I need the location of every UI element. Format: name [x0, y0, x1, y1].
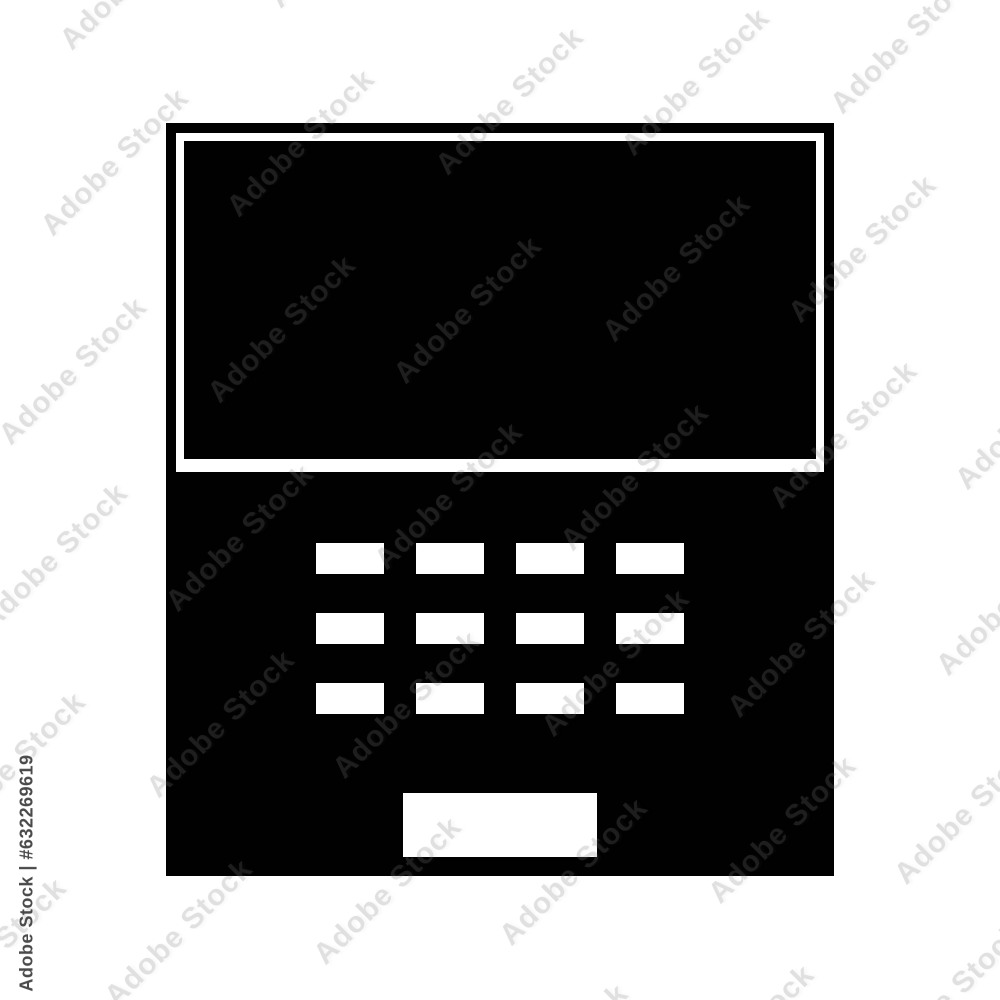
- watermark-tile-text: Adobe Stock: [0, 290, 154, 451]
- laptop-key: [516, 543, 584, 574]
- laptop-key: [416, 613, 484, 644]
- laptop-key: [616, 543, 684, 574]
- watermark-tile-text: Adobe Stock: [262, 0, 423, 15]
- watermark-attribution-text: Adobe Stock | #632269619: [17, 754, 38, 991]
- laptop-key: [316, 683, 384, 714]
- watermark-tile-text: Adobe Stock: [930, 521, 1000, 682]
- laptop-spacebar-key: [403, 793, 597, 857]
- watermark-tile-text: Adobe Stock: [888, 730, 1000, 891]
- laptop-key: [616, 683, 684, 714]
- laptop-icon: [166, 123, 834, 876]
- watermark-tile-text: Adobe Stock: [869, 916, 1000, 1000]
- laptop-key: [416, 683, 484, 714]
- watermark-tile-text: Adobe Stock: [991, 126, 1000, 287]
- laptop-screen: [176, 133, 824, 472]
- watermark-tile-text: Adobe Stock: [660, 958, 821, 1000]
- stock-image-canvas: Adobe StockAdobe StockAdobe StockAdobe S…: [0, 0, 1000, 1000]
- watermark-tile-text: Adobe Stock: [474, 977, 635, 1000]
- laptop-key: [516, 683, 584, 714]
- watermark-tile-text: Adobe Stock: [949, 335, 1000, 496]
- laptop-key: [316, 543, 384, 574]
- laptop-key: [616, 613, 684, 644]
- laptop-key: [316, 613, 384, 644]
- watermark-tile-text: Adobe Stock: [0, 685, 93, 846]
- watermark-tile-text: Adobe Stock: [0, 0, 29, 76]
- watermark-tile-text: Adobe Stock: [53, 0, 214, 57]
- watermark-tile-text: Adobe Stock: [0, 476, 135, 637]
- laptop-key: [516, 613, 584, 644]
- laptop-key: [416, 543, 484, 574]
- watermark-tile-text: Adobe Stock: [824, 0, 985, 121]
